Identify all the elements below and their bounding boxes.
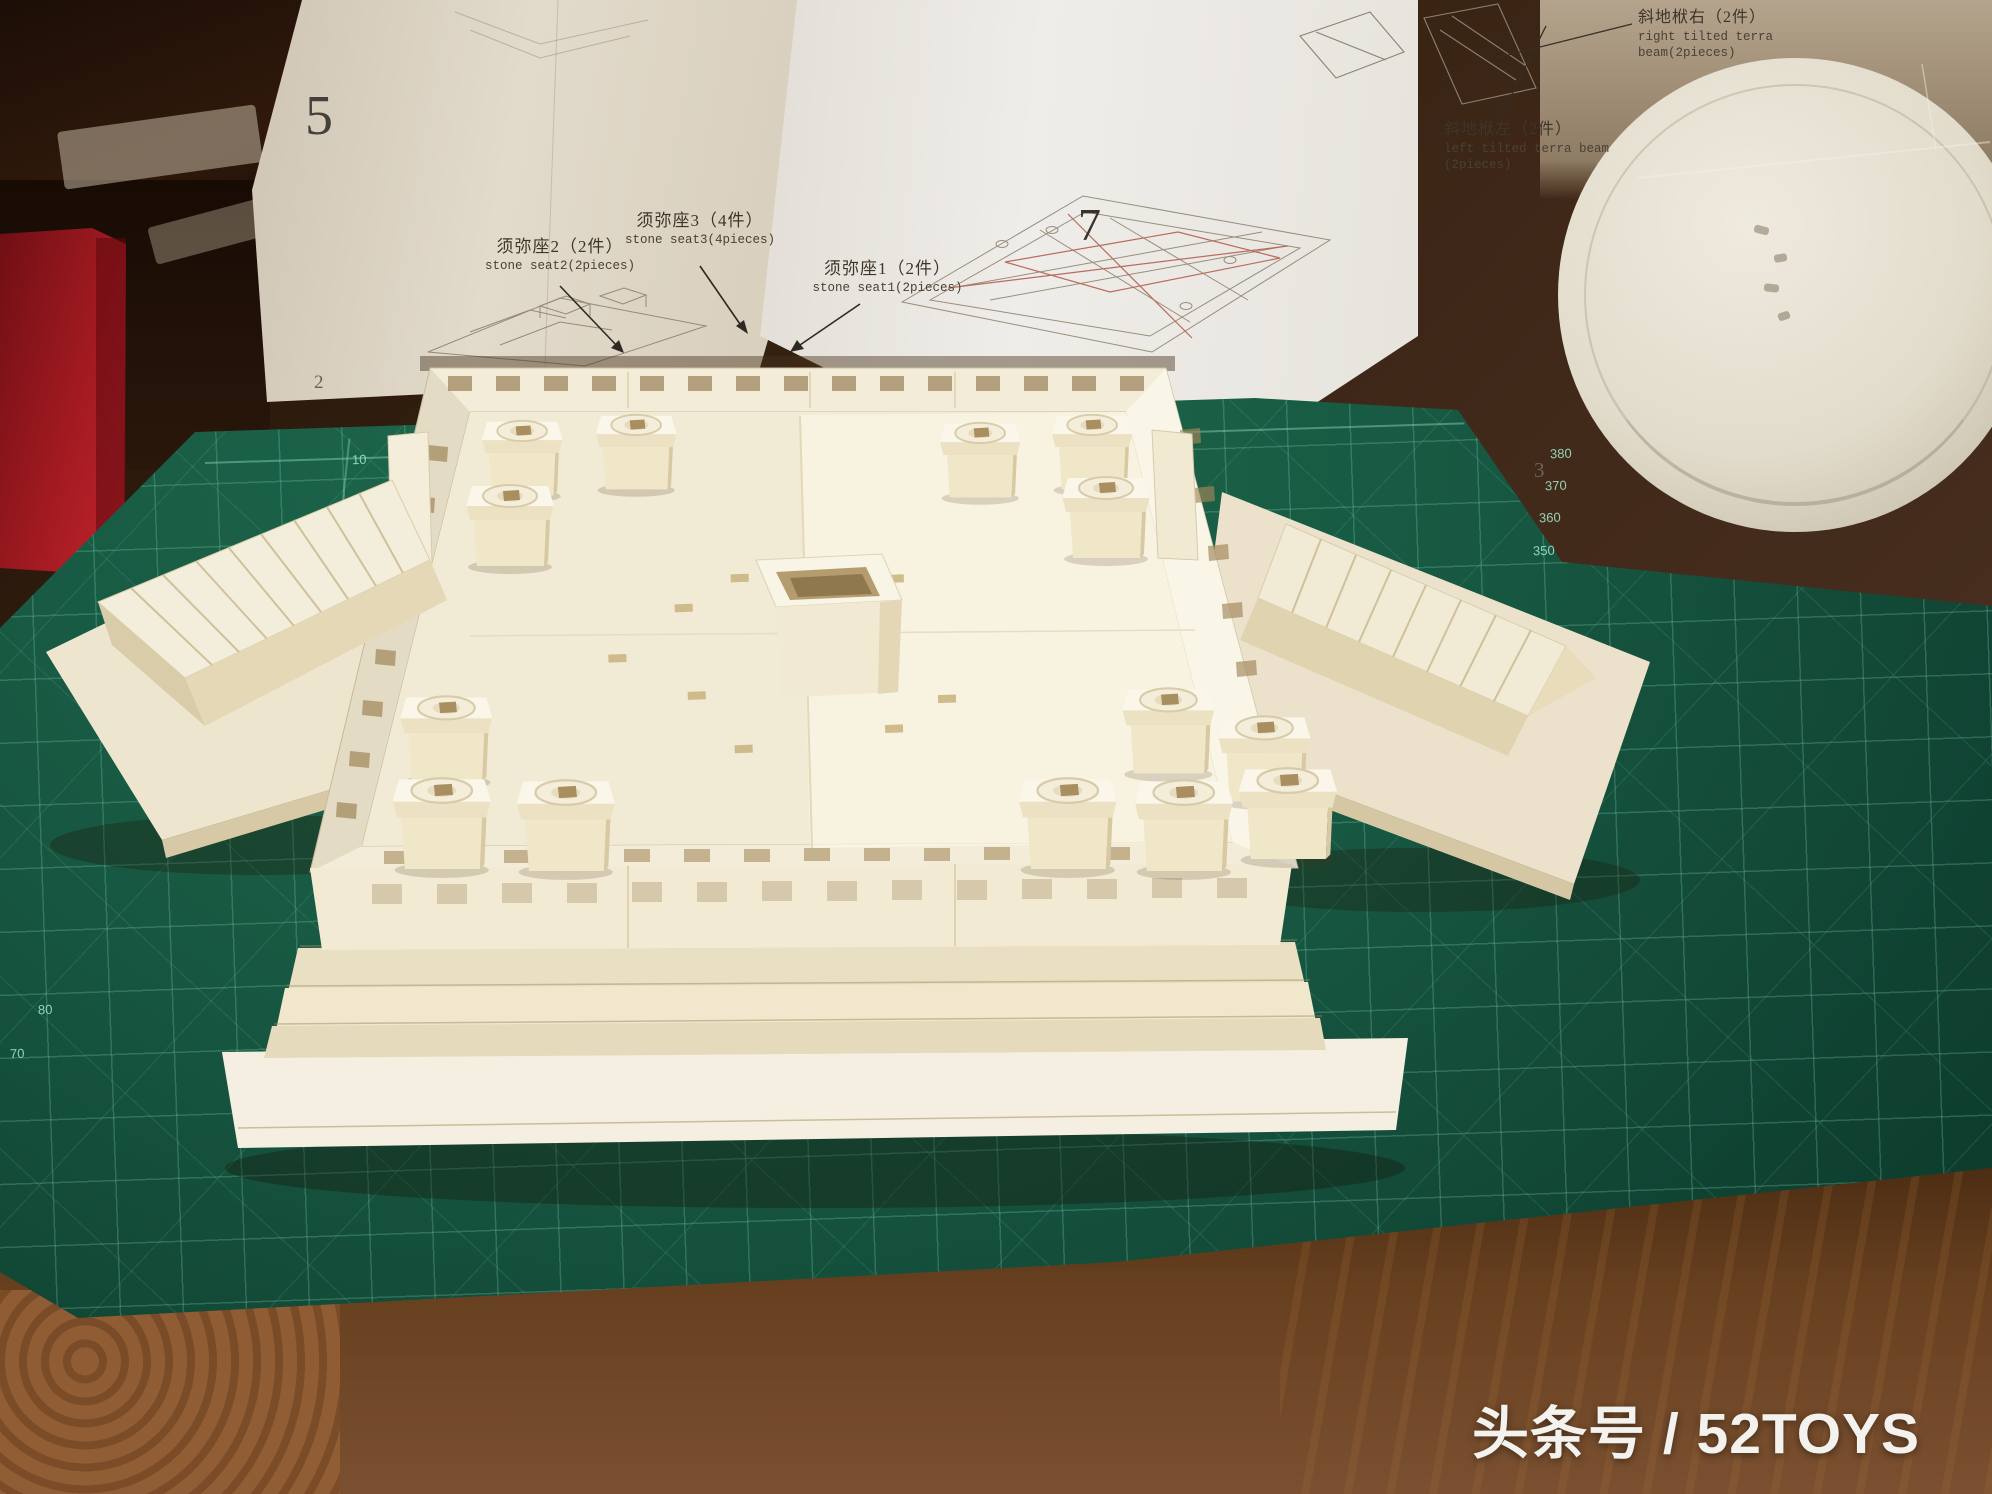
stone-seat-pedestal xyxy=(1122,688,1214,781)
gate-pillar-right xyxy=(1152,430,1198,560)
model-front-steps xyxy=(264,940,1326,1058)
stone-seat-pedestal xyxy=(1018,778,1117,878)
photo-scene: 5 7 2 3 须弥座2（2件） stone seat2(2pieces) 须弥… xyxy=(0,0,1992,1494)
stone-seat-pedestal xyxy=(1134,780,1233,880)
stone-seat-pedestal xyxy=(596,415,677,497)
stone-seat-pedestal xyxy=(392,778,491,878)
wall-slot-holes-top xyxy=(448,376,1144,391)
stone-seat-pedestal xyxy=(400,696,492,789)
stone-seat-pedestal xyxy=(1062,477,1150,566)
watermark-52toys: 头条号 / 52TOYS xyxy=(1472,1388,1920,1470)
stone-seat-pedestal xyxy=(466,485,554,574)
stone-seat-pedestal xyxy=(1238,768,1337,868)
model-platform xyxy=(0,0,1992,1494)
stone-seat-pedestal xyxy=(940,423,1021,505)
stone-seat-pedestal xyxy=(516,780,615,880)
